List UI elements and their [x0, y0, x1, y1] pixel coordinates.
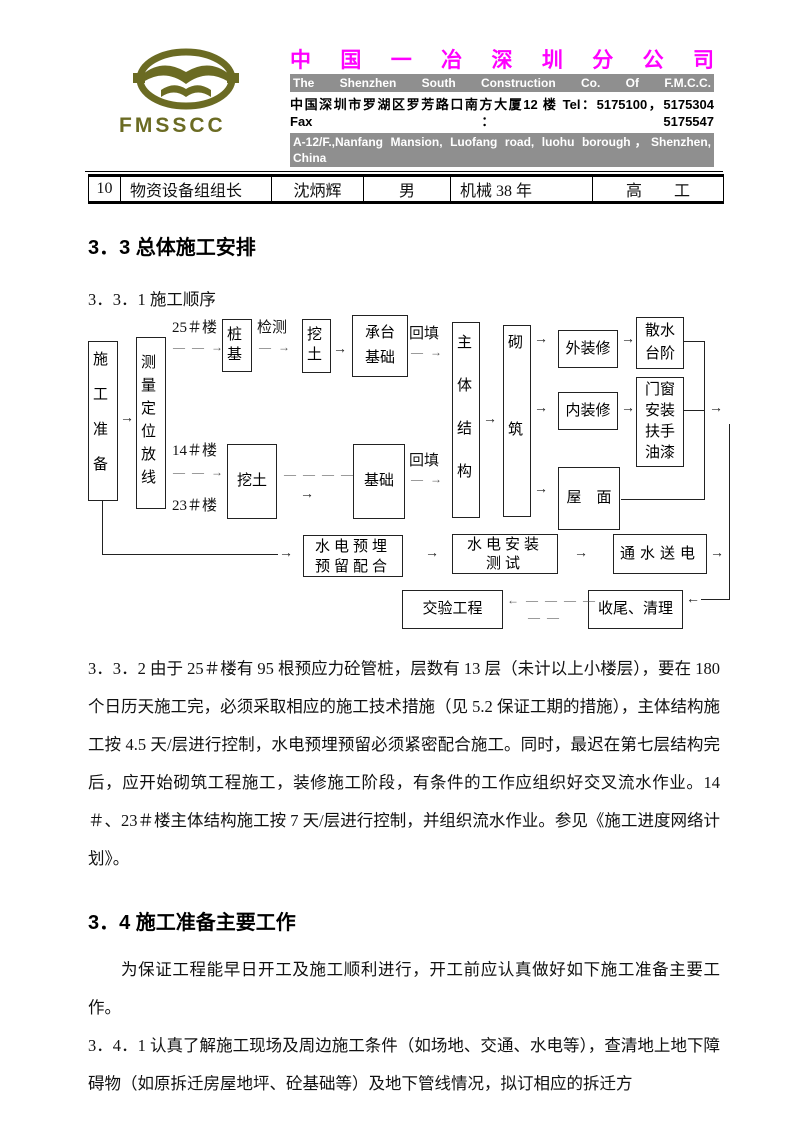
cell-name: 沈炳辉: [272, 176, 364, 203]
label-building-25: 25＃楼: [172, 316, 217, 337]
dashed-arrow-right-icon: — →: [259, 341, 292, 353]
connector-line: [701, 599, 730, 600]
flow-node-dig1: 挖土: [302, 319, 331, 373]
flow-node-found: 基础: [353, 444, 405, 519]
connector-line: [704, 341, 705, 500]
paragraph-3-4-intro: 为保证工程能早日开工及施工顺利进行，开工前应认真做好如下施工准备主要工作。: [88, 951, 720, 1027]
arrow-left-icon: ←: [686, 593, 700, 607]
section-3-3-heading: 3．3 总体施工安排: [88, 231, 793, 260]
flow-node-dig2: 挖土: [227, 444, 277, 519]
flow-node-doors: 门窗安装扶手油漆: [636, 377, 684, 467]
section-3-4-heading: 3．4 施工准备主要工作: [88, 906, 793, 935]
section-3-3-1-heading: 3．3．1 施工顺序: [88, 286, 793, 310]
flow-node-embed: 水电预埋预留配合: [303, 535, 403, 577]
cell-role: 物资设备组组长: [121, 176, 272, 203]
arrow-right-icon: →: [709, 402, 723, 416]
flow-node-cap: 承台基础: [352, 315, 408, 377]
arrow-right-icon: →: [425, 547, 439, 561]
construction-sequence-flowchart: 施工准备 测量定位放线 桩基 挖土 承台基础 主体结构 砌筑 外装修 散水台阶 …: [0, 310, 793, 640]
dashed-arrow-left-icon: ← — — — —: [507, 594, 597, 606]
cell-title: 高 工: [593, 176, 724, 203]
flow-node-masonry: 砌筑: [503, 325, 531, 517]
arrow-right-icon: →: [621, 402, 635, 416]
label-inspect: 检测: [257, 316, 287, 337]
header-divider: [85, 171, 723, 172]
table-row: 10 物资设备组组长 沈炳辉 男 机械 38 年 高 工: [89, 176, 724, 203]
fmsscc-logo-icon: [121, 48, 251, 112]
flow-node-apron: 散水台阶: [636, 317, 684, 369]
cell-experience: 机械 38 年: [451, 176, 593, 203]
flow-node-roof: 屋 面: [558, 467, 620, 530]
arrow-right-icon: →: [279, 547, 293, 561]
logo-caption: FMSSCC: [119, 114, 290, 138]
letterhead: FMSSCC 中 国 一 冶 深 圳 分 公 司 The Shenzhen So…: [0, 0, 793, 167]
flow-node-cleanup: 收尾、清理: [588, 590, 683, 629]
cell-gender: 男: [364, 176, 451, 203]
paragraph-3-3-2: 3．3．2 由于 25＃楼有 95 根预应力砼管桩，层数有 13 层（未计以上小…: [88, 650, 720, 878]
label-backfill-1: 回填: [409, 322, 439, 343]
cell-number: 10: [89, 176, 121, 203]
flow-node-ext: 外装修: [558, 330, 618, 368]
company-address-en: A-12/F.,Nanfang Mansion, Luofang road, l…: [290, 133, 714, 167]
dashed-arrow-right-icon: — →: [411, 346, 444, 358]
dashed-arrow-right-icon: — — →: [173, 466, 225, 478]
dashed-arrow-right-icon: — — →: [173, 341, 225, 353]
staff-table: 10 物资设备组组长 沈炳辉 男 机械 38 年 高 工: [88, 174, 724, 204]
flow-node-power: 通水送电: [613, 534, 707, 574]
flow-node-int: 内装修: [558, 392, 618, 430]
flow-node-main: 主体结构: [452, 322, 480, 518]
label-backfill-2: 回填: [409, 449, 439, 470]
dashed-line-icon: — —: [528, 611, 561, 623]
connector-line: [102, 501, 103, 555]
arrow-right-icon: →: [534, 483, 548, 497]
paragraph-3-4-1: 3．4．1 认真了解施工现场及周边施工条件（如场地、交通、水电等），查清地上地下…: [88, 1027, 720, 1103]
connector-line: [102, 554, 278, 555]
dashed-line-icon: — — — —: [284, 468, 355, 480]
company-logo-block: FMSSCC: [85, 48, 290, 167]
label-building-14: 14＃楼: [172, 439, 217, 460]
arrow-right-icon: →: [574, 547, 588, 561]
company-identity-block: 中 国 一 冶 深 圳 分 公 司 The Shenzhen South Con…: [290, 48, 714, 167]
dashed-arrow-right-icon: — →: [411, 473, 444, 485]
arrow-right-icon: →: [333, 343, 347, 357]
label-building-23: 23＃楼: [172, 494, 217, 515]
connector-line: [729, 424, 730, 600]
connector-line: [684, 341, 705, 342]
document-page: FMSSCC 中 国 一 冶 深 圳 分 公 司 The Shenzhen So…: [0, 0, 793, 1122]
flow-node-install: 水电安装测试: [452, 534, 558, 574]
arrow-right-icon: →: [300, 488, 314, 502]
arrow-right-icon: →: [534, 402, 548, 416]
arrow-right-icon: →: [621, 333, 635, 347]
company-address-cn: 中国深圳市罗湖区罗芳路口南方大厦12 楼 Tel：5175100，5175304…: [290, 96, 714, 130]
connector-line: [684, 410, 705, 411]
flow-node-survey: 测量定位放线: [136, 337, 166, 509]
company-name-cn: 中 国 一 冶 深 圳 分 公 司: [290, 48, 714, 74]
company-name-en: The Shenzhen South Construction Co. Of F…: [290, 74, 714, 92]
connector-line: [621, 499, 705, 500]
flow-node-prep: 施工准备: [88, 341, 118, 501]
arrow-right-icon: →: [120, 412, 134, 426]
flow-node-pile: 桩基: [222, 319, 252, 372]
arrow-right-icon: →: [534, 333, 548, 347]
arrow-right-icon: →: [483, 413, 497, 427]
arrow-right-icon: →: [710, 547, 724, 561]
flow-node-handover: 交验工程: [402, 590, 503, 629]
